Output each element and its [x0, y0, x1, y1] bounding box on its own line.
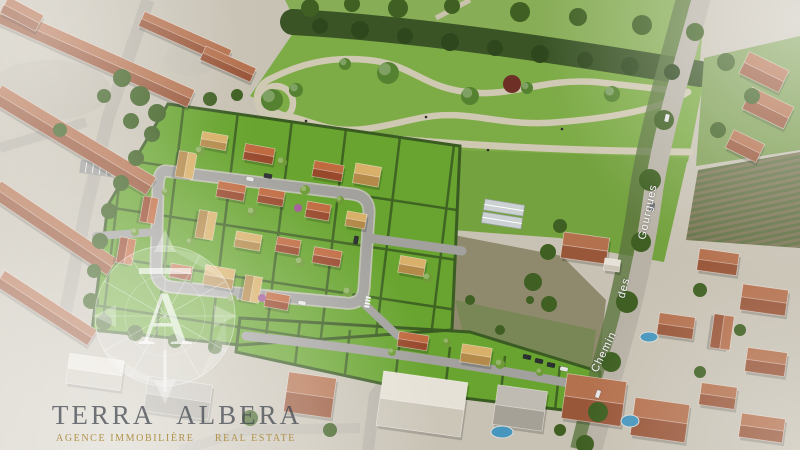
- house: [656, 313, 697, 343]
- tree: [495, 325, 505, 335]
- tree: [461, 87, 479, 105]
- tree: [339, 58, 351, 70]
- tree: [53, 123, 67, 137]
- tree: [101, 203, 117, 219]
- tree: [521, 82, 533, 94]
- tree: [531, 45, 549, 63]
- pedestrian-dot: [305, 120, 308, 123]
- agency-tagline: AGENCE IMMOBILIÈRE REAL ESTATE: [56, 433, 296, 444]
- tree: [97, 89, 111, 103]
- tree: [377, 62, 399, 84]
- tree: [195, 146, 205, 156]
- tree: [540, 244, 556, 260]
- tagline-en: REAL ESTATE: [215, 433, 296, 444]
- scene-canvas: A: [0, 0, 800, 450]
- pedestrian-dot: [425, 116, 428, 119]
- tree: [694, 366, 706, 378]
- tree: [686, 23, 704, 41]
- swimming-pool: [621, 415, 639, 427]
- tree: [294, 204, 302, 212]
- tree: [123, 113, 139, 129]
- tree: [423, 273, 433, 283]
- tree: [654, 110, 674, 130]
- tagline-fr: AGENCE IMMOBILIÈRE: [56, 433, 195, 444]
- tree: [717, 53, 735, 71]
- tree: [113, 69, 131, 87]
- tree: [258, 294, 266, 302]
- tree: [128, 150, 144, 166]
- tree: [261, 89, 283, 111]
- tree: [443, 338, 451, 346]
- tree: [495, 359, 505, 369]
- tree: [247, 207, 257, 217]
- tree: [343, 287, 353, 297]
- tree: [744, 88, 760, 104]
- tree: [388, 348, 396, 356]
- aerial-development-render: A GourguesdesChemin TERRA ALBERA AGENCE …: [0, 0, 800, 450]
- tree: [148, 104, 166, 122]
- tree: [510, 2, 530, 22]
- house: [698, 383, 739, 413]
- tree: [300, 185, 310, 195]
- house: [603, 258, 623, 275]
- tree: [734, 324, 746, 336]
- pedestrian-dot: [561, 128, 564, 131]
- tree: [231, 89, 243, 101]
- tree: [162, 188, 170, 196]
- tree: [588, 402, 608, 422]
- tree: [131, 228, 139, 236]
- tree: [710, 122, 726, 138]
- swimming-pool: [491, 426, 513, 438]
- tree: [277, 157, 287, 167]
- tree: [113, 175, 129, 191]
- tree: [569, 8, 587, 26]
- tree: [553, 219, 567, 233]
- tree: [323, 423, 337, 437]
- tree: [536, 368, 544, 376]
- tree: [632, 15, 652, 35]
- tree: [554, 424, 566, 436]
- tree: [351, 21, 369, 39]
- tree: [186, 238, 194, 246]
- house: [344, 211, 369, 233]
- tree: [130, 86, 150, 106]
- tree: [524, 273, 542, 291]
- tree: [487, 40, 503, 56]
- tree: [295, 257, 305, 267]
- tree: [621, 57, 639, 75]
- tree: [92, 233, 108, 249]
- agency-name: TERRA ALBERA: [50, 400, 304, 431]
- house: [352, 163, 384, 191]
- tree: [577, 52, 593, 68]
- tree: [441, 33, 459, 51]
- tree: [203, 92, 217, 106]
- tree: [541, 296, 557, 312]
- tree: [664, 64, 680, 80]
- monogram-letter: A: [138, 277, 193, 361]
- house: [376, 371, 470, 441]
- tree: [87, 264, 101, 278]
- tree: [465, 295, 475, 305]
- tree: [144, 126, 160, 142]
- tree: [397, 28, 413, 44]
- swimming-pool: [640, 332, 658, 342]
- tree: [289, 83, 303, 97]
- tree: [312, 18, 328, 34]
- tree: [503, 75, 521, 93]
- pedestrian-dot: [487, 149, 490, 152]
- tree: [336, 196, 344, 204]
- tree: [526, 296, 534, 304]
- tree: [604, 86, 620, 102]
- tree: [693, 283, 707, 297]
- monogram-t-bar: [139, 268, 191, 274]
